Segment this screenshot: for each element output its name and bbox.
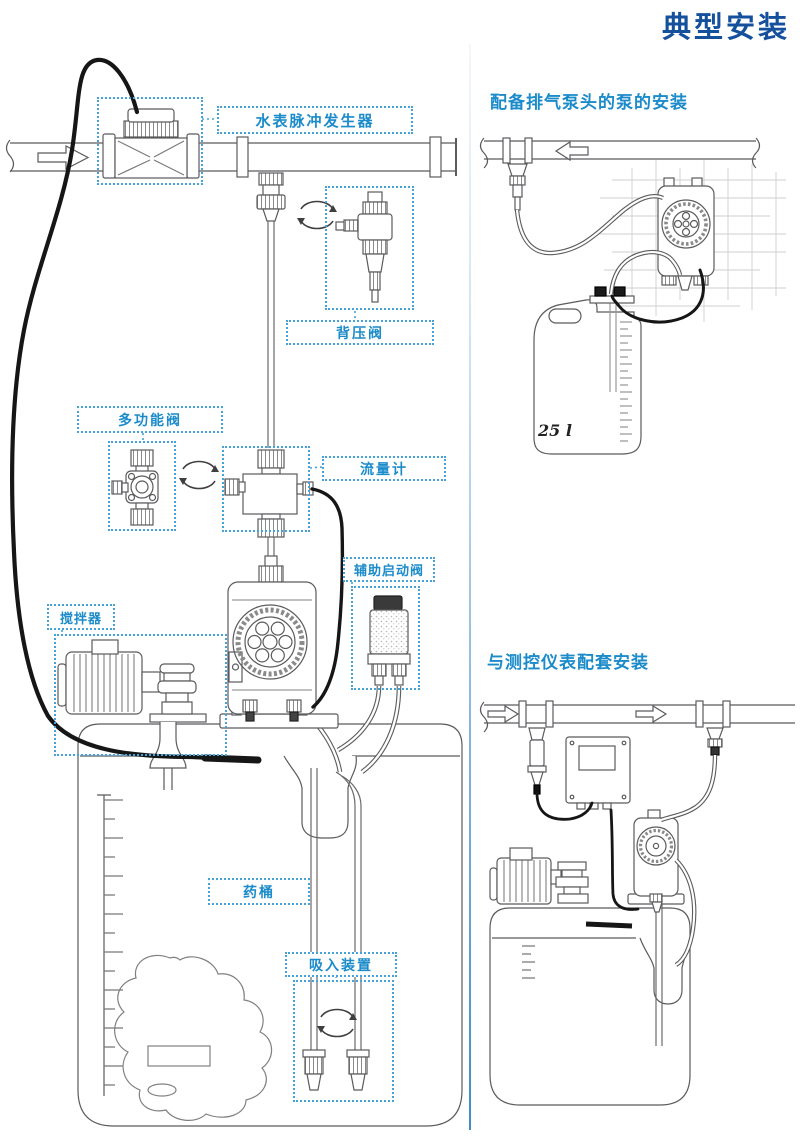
swap-arrows-icon — [179, 462, 219, 489]
flow-arrow-icon — [38, 146, 88, 169]
injection-fitting-drawing — [257, 173, 285, 448]
agitator-box — [54, 634, 227, 756]
water-meter-box — [97, 97, 203, 185]
label-suction-device: 吸入装置 — [285, 952, 397, 977]
section-heading-degassing: 配备排气泵头的泵的安装 — [490, 88, 688, 113]
flow-arrow-icon — [556, 142, 588, 160]
injection-fitting-drawing — [508, 164, 527, 210]
back-pressure-valve-box — [325, 186, 414, 310]
section-heading-instrument: 与测控仪表配套安装 — [487, 648, 649, 673]
flow-meter-box — [222, 446, 310, 532]
label-water-meter-pulse-generator: 水表脉冲发生器 — [217, 106, 413, 134]
agitator-motor-drawing — [490, 848, 588, 904]
flow-arrow-icon — [636, 706, 666, 722]
dosing-pump-drawing — [220, 556, 338, 728]
dosing-pump-drawing — [658, 178, 714, 290]
label-chemical-tank: 药桶 — [208, 878, 310, 905]
injection-fitting-drawing — [707, 728, 723, 755]
multifunction-valve-box — [108, 441, 176, 531]
auxiliary-valve-box — [351, 586, 420, 690]
tank-drawing — [490, 904, 690, 1105]
canister-capacity-label: 25 l — [538, 421, 572, 440]
instrument-panel — [481, 701, 796, 1105]
label-agitator: 搅拌器 — [47, 604, 115, 630]
label-auxiliary-priming-valve: 辅助启动阀 — [343, 557, 435, 582]
flow-arrow-icon — [488, 706, 518, 722]
chemical-tank-drawing — [78, 724, 462, 1126]
degassing-pump-panel — [481, 138, 787, 454]
water-pipe-drawing — [481, 701, 796, 732]
label-back-pressure-valve: 背压阀 — [286, 320, 434, 345]
page-title: 典型安装 — [560, 4, 790, 46]
sensor-probe-drawing — [528, 728, 546, 794]
controller-box-drawing — [566, 737, 630, 809]
label-flow-meter: 流量计 — [322, 456, 446, 481]
section-divider — [469, 44, 471, 1130]
cable-on-lid — [586, 924, 632, 926]
label-multifunction-valve: 多功能阀 — [77, 406, 223, 433]
suction-device-box — [293, 980, 394, 1102]
